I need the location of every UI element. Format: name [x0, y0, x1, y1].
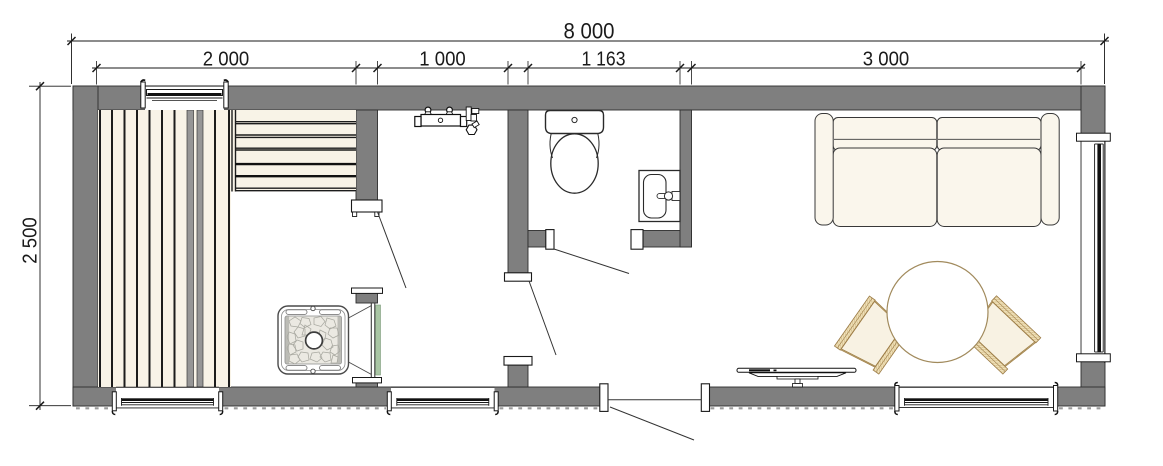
- svg-text:1 163: 1 163: [582, 48, 626, 70]
- svg-text:2 000: 2 000: [203, 48, 250, 70]
- svg-text:2 500: 2 500: [20, 217, 42, 264]
- svg-text:8 000: 8 000: [564, 18, 615, 43]
- svg-text:3 000: 3 000: [863, 48, 910, 70]
- svg-text:1 000: 1 000: [419, 48, 466, 70]
